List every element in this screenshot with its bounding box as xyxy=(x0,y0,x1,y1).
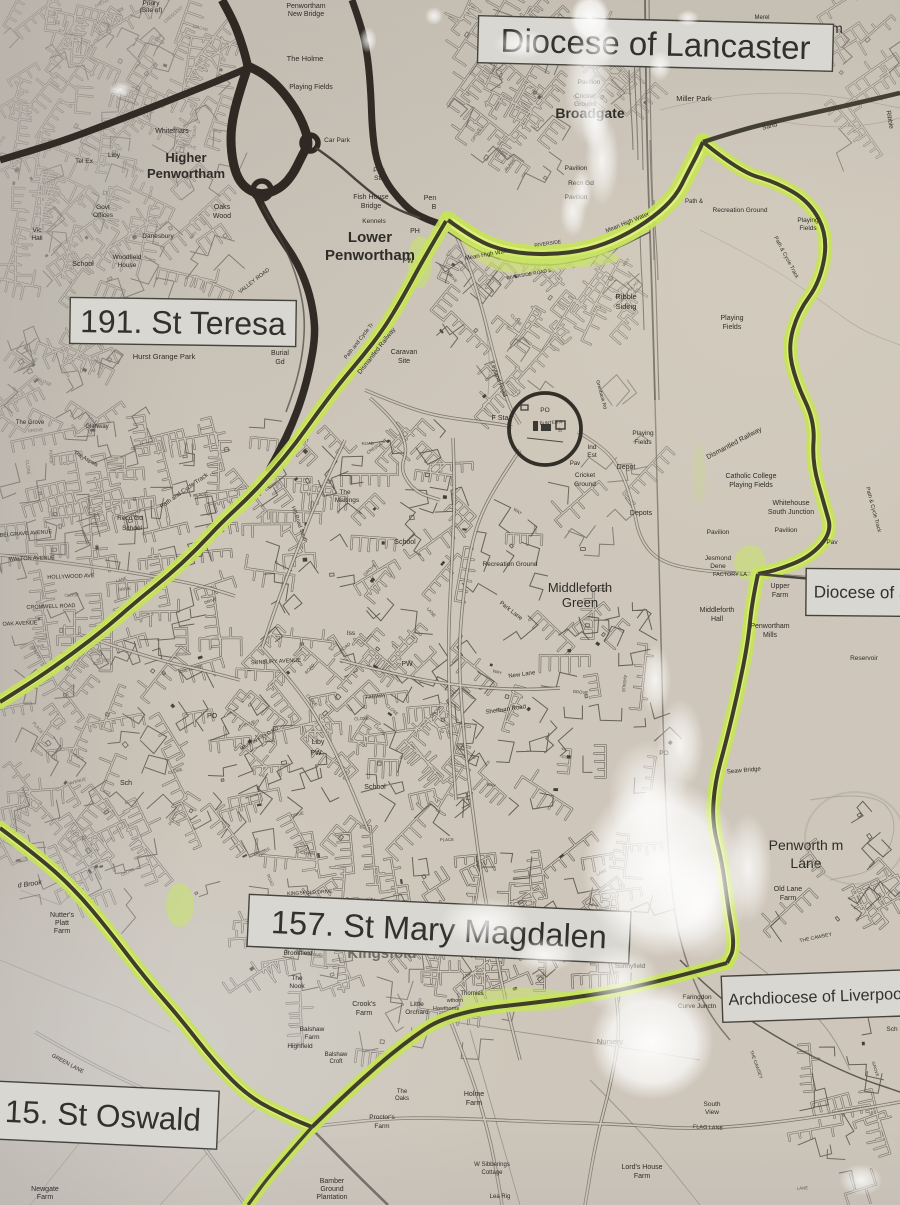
svg-text:Caravan: Caravan xyxy=(391,349,418,356)
svg-text:Cottage: Cottage xyxy=(481,1170,503,1176)
svg-text:Sch: Sch xyxy=(886,1026,898,1033)
svg-text:School: School xyxy=(394,539,416,546)
svg-text:View: View xyxy=(705,1109,719,1116)
svg-text:Proctor's: Proctor's xyxy=(369,1114,395,1121)
svg-text:Pen: Pen xyxy=(424,195,437,202)
svg-text:Site: Site xyxy=(398,358,410,365)
svg-text:PW: PW xyxy=(401,661,413,668)
svg-text:The Holme: The Holme xyxy=(287,54,324,63)
svg-text:Ground: Ground xyxy=(320,1186,343,1193)
svg-text:Ind: Ind xyxy=(587,444,596,451)
svg-text:Path &: Path & xyxy=(685,199,703,205)
svg-text:Woodfield: Woodfield xyxy=(113,254,142,261)
svg-text:Bamber: Bamber xyxy=(320,1178,345,1185)
svg-text:Liby: Liby xyxy=(312,739,325,746)
svg-text:Recreation Ground: Recreation Ground xyxy=(483,561,538,568)
svg-text:Lower: Lower xyxy=(348,229,392,246)
svg-text:Vic: Vic xyxy=(33,227,43,234)
svg-text:Old Lane: Old Lane xyxy=(774,886,803,893)
svg-text:Tel Ex: Tel Ex xyxy=(75,158,93,165)
svg-text:Holme: Holme xyxy=(464,1091,484,1098)
svg-text:wthorn: wthorn xyxy=(446,998,464,1004)
svg-text:Farm: Farm xyxy=(780,895,797,902)
svg-text:Ribble: Ribble xyxy=(615,292,636,301)
svg-text:Offices: Offices xyxy=(93,212,114,219)
svg-text:PH: PH xyxy=(410,228,420,235)
svg-text:Oaks: Oaks xyxy=(395,1096,409,1102)
svg-text:Merel: Merel xyxy=(754,15,769,21)
svg-text:Fields: Fields xyxy=(799,225,817,232)
svg-text:Farm: Farm xyxy=(54,928,71,935)
svg-text:Jesmond: Jesmond xyxy=(705,555,732,562)
svg-text:OAK AVENUE: OAK AVENUE xyxy=(2,620,38,627)
svg-text:Ground: Ground xyxy=(574,481,596,488)
svg-text:The: The xyxy=(397,1089,408,1095)
svg-text:The Grove: The Grove xyxy=(16,420,45,426)
svg-text:Farm: Farm xyxy=(37,1194,54,1201)
svg-text:Fields: Fields xyxy=(634,439,652,446)
svg-text:South: South xyxy=(704,1101,721,1108)
svg-text:Fish House: Fish House xyxy=(353,194,389,201)
svg-text:Farm: Farm xyxy=(304,1034,319,1041)
svg-text:Playing: Playing xyxy=(797,217,819,224)
svg-text:Little: Little xyxy=(410,1001,424,1008)
svg-text:Kennels: Kennels xyxy=(362,218,386,225)
svg-text:Balshaw: Balshaw xyxy=(300,1026,325,1033)
svg-text:Penwortham: Penwortham xyxy=(147,166,225,181)
svg-text:Est: Est xyxy=(587,452,597,459)
svg-text:Glenway: Glenway xyxy=(85,424,108,430)
svg-text:Miller Park: Miller Park xyxy=(676,94,712,103)
svg-text:Siding: Siding xyxy=(616,302,637,311)
svg-text:Plantation: Plantation xyxy=(316,1194,347,1201)
svg-text:191. St Teresa: 191. St Teresa xyxy=(80,303,286,342)
svg-text:PO: PO xyxy=(540,407,549,414)
svg-text:Highfield: Highfield xyxy=(287,1043,313,1050)
svg-text:Govt: Govt xyxy=(96,204,110,211)
svg-text:Farm: Farm xyxy=(374,1123,389,1130)
svg-text:Bridge: Bridge xyxy=(361,203,381,210)
svg-text:PO: PO xyxy=(207,713,218,720)
svg-text:Playing Fields: Playing Fields xyxy=(729,482,773,489)
svg-text:B: B xyxy=(432,204,437,211)
svg-text:Playing: Playing xyxy=(721,315,744,322)
svg-text:Wood: Wood xyxy=(213,213,231,220)
svg-text:Hawthorns: Hawthorns xyxy=(433,1006,460,1012)
svg-text:Orchard: Orchard xyxy=(405,1009,429,1016)
svg-text:Playing Fields: Playing Fields xyxy=(289,84,333,91)
svg-text:Catholic College: Catholic College xyxy=(726,473,777,480)
svg-text:Fields: Fields xyxy=(723,324,742,331)
svg-text:Reservoir: Reservoir xyxy=(850,655,879,662)
svg-text:Upper: Upper xyxy=(770,583,790,590)
svg-text:The: The xyxy=(339,489,351,496)
svg-text:School: School xyxy=(364,784,386,791)
svg-text:Lea Rig: Lea Rig xyxy=(490,1194,511,1200)
svg-text:Green: Green xyxy=(562,595,598,610)
svg-text:Middleforth: Middleforth xyxy=(548,580,612,595)
svg-text:School: School xyxy=(72,261,94,268)
svg-text:Iss: Iss xyxy=(347,630,356,637)
svg-text:Crook's: Crook's xyxy=(352,1001,376,1008)
svg-text:Recreation Ground: Recreation Ground xyxy=(713,207,768,214)
svg-text:Higher: Higher xyxy=(165,150,206,165)
svg-text:Recn Gd: Recn Gd xyxy=(117,515,143,522)
svg-text:Sta: Sta xyxy=(374,175,384,182)
svg-text:Newgate: Newgate xyxy=(31,1186,59,1193)
svg-text:Depot: Depot xyxy=(617,464,636,471)
svg-text:Hurst Grange Park: Hurst Grange Park xyxy=(133,352,196,361)
svg-text:Maltings: Maltings xyxy=(335,497,360,504)
svg-text:Lord's House: Lord's House xyxy=(621,1164,662,1171)
svg-text:Gd: Gd xyxy=(275,359,284,366)
svg-text:W Sibberings: W Sibberings xyxy=(474,1162,510,1168)
svg-text:Farm: Farm xyxy=(634,1173,651,1180)
svg-text:Burial: Burial xyxy=(271,350,289,357)
svg-text:Balshaw: Balshaw xyxy=(325,1052,348,1058)
svg-text:Danesbury: Danesbury xyxy=(142,233,174,240)
svg-text:Depots: Depots xyxy=(630,510,653,517)
svg-text:Sch: Sch xyxy=(120,780,132,787)
svg-text:Car Park: Car Park xyxy=(324,137,350,144)
svg-text:Priory: Priory xyxy=(143,0,161,7)
svg-text:Oaks: Oaks xyxy=(214,204,231,211)
svg-text:Liby: Liby xyxy=(108,152,121,159)
svg-text:Playing: Playing xyxy=(632,430,654,437)
svg-text:Pav: Pav xyxy=(570,461,580,467)
svg-text:Hall: Hall xyxy=(31,235,43,242)
svg-text:Nook: Nook xyxy=(289,983,305,990)
svg-text:The: The xyxy=(291,975,303,982)
svg-text:Farm: Farm xyxy=(466,1100,483,1107)
svg-text:Pav: Pav xyxy=(826,539,838,546)
svg-text:(Site of): (Site of) xyxy=(140,7,163,14)
svg-text:Croft: Croft xyxy=(329,1059,342,1065)
svg-text:Ppg: Ppg xyxy=(373,167,385,174)
svg-text:Nutter's: Nutter's xyxy=(50,912,74,919)
svg-text:Pavilion: Pavilion xyxy=(775,527,798,534)
svg-text:h: h xyxy=(558,428,561,434)
svg-text:Diocese of S: Diocese of S xyxy=(814,583,900,603)
svg-text:Penwortham: Penwortham xyxy=(286,3,325,10)
svg-text:Platt: Platt xyxy=(55,920,69,927)
svg-text:Whitefriars: Whitefriars xyxy=(155,128,189,135)
svg-text:Farm: Farm xyxy=(356,1010,373,1017)
svg-text:School: School xyxy=(122,525,142,532)
svg-text:Thornies: Thornies xyxy=(460,991,483,997)
svg-text:FACTORY LA: FACTORY LA xyxy=(713,572,747,578)
svg-text:South Junction: South Junction xyxy=(768,509,814,516)
svg-text:PW: PW xyxy=(402,258,414,265)
svg-text:Hall: Hall xyxy=(711,616,724,623)
svg-text:New Bridge: New Bridge xyxy=(288,11,324,18)
svg-text:Dene: Dene xyxy=(710,563,726,570)
svg-text:House: House xyxy=(118,262,137,269)
svg-text:Pavilion: Pavilion xyxy=(707,529,730,536)
svg-text:Middleforth: Middleforth xyxy=(700,607,735,614)
svg-text:PW: PW xyxy=(310,750,322,757)
svg-text:F Sta: F Sta xyxy=(492,415,509,422)
svg-text:Mills: Mills xyxy=(763,632,777,639)
svg-text:Cricket: Cricket xyxy=(575,472,595,479)
svg-text:Penwortham: Penwortham xyxy=(750,623,789,630)
svg-text:Whitehouse: Whitehouse xyxy=(773,500,810,507)
svg-text:Farm: Farm xyxy=(772,592,789,599)
